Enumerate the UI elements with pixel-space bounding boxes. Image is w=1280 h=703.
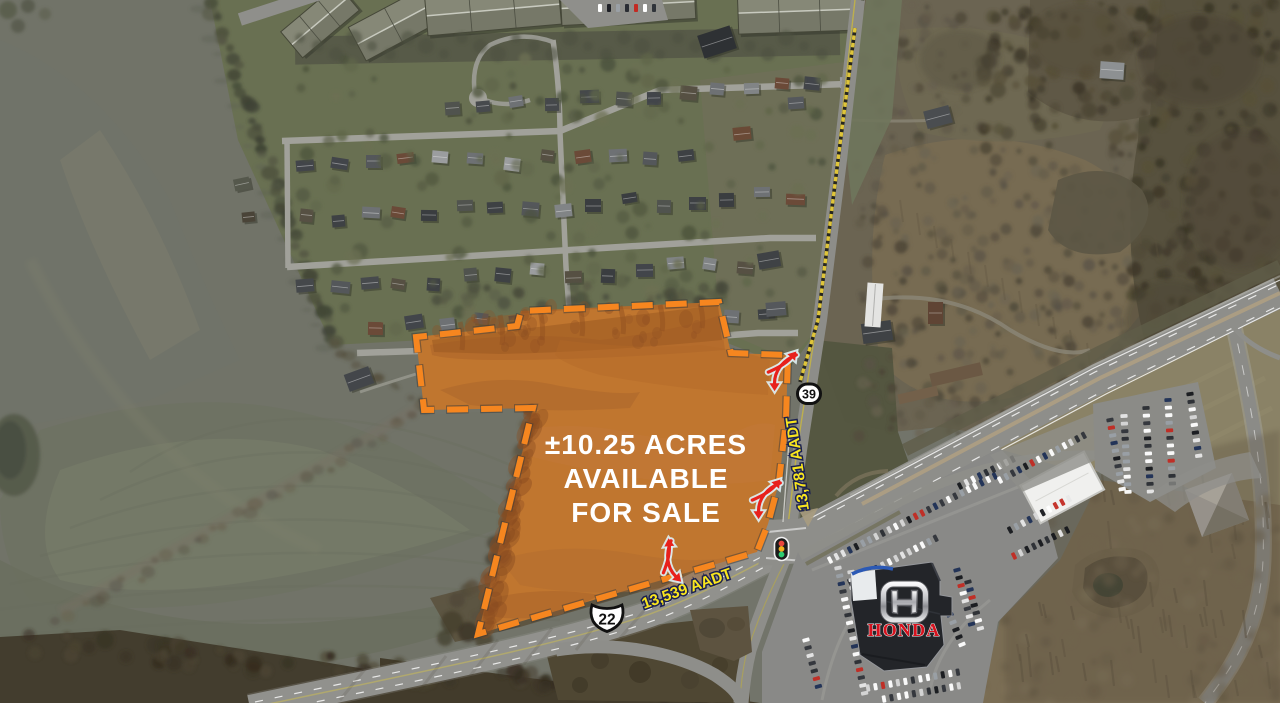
svg-text:±10.25 ACRES: ±10.25 ACRES bbox=[545, 429, 747, 460]
svg-text:FOR SALE: FOR SALE bbox=[571, 497, 721, 528]
svg-text:HONDA: HONDA bbox=[868, 620, 941, 640]
svg-text:39: 39 bbox=[802, 388, 816, 402]
svg-text:22: 22 bbox=[598, 612, 615, 629]
svg-text:AVAILABLE: AVAILABLE bbox=[563, 463, 728, 494]
